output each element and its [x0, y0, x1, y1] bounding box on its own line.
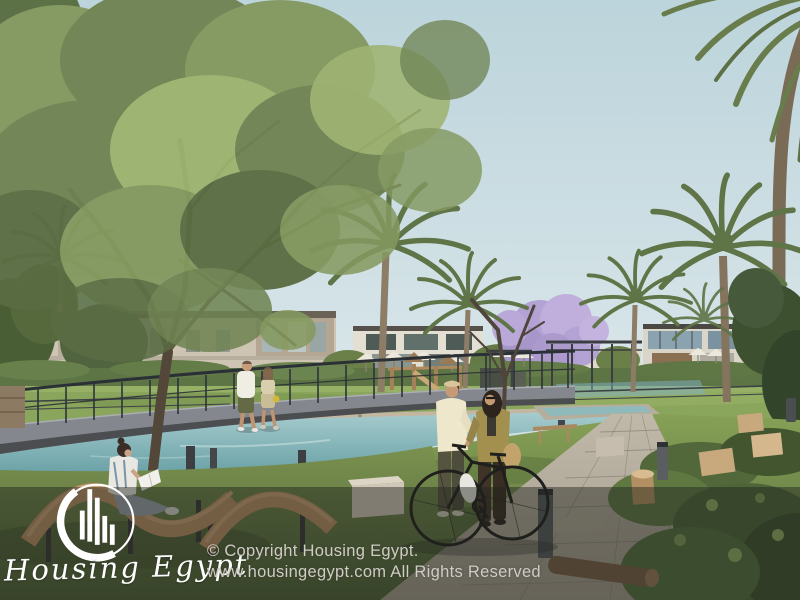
brand-name: Housing Egypt — [4, 548, 205, 587]
copyright-line1: © Copyright Housing Egypt. — [207, 541, 541, 562]
wood-cabinet-left — [0, 386, 25, 428]
render-image: Housing Egypt © Copyright Housing Egypt.… — [0, 0, 800, 600]
copyright-text: © Copyright Housing Egypt. www.housingeg… — [207, 541, 541, 583]
logo-building-bars — [80, 489, 115, 545]
copyright-line2: www.housingegypt.com All Rights Reserved — [207, 562, 541, 583]
housing-egypt-buildings-circle-logo — [54, 472, 140, 562]
